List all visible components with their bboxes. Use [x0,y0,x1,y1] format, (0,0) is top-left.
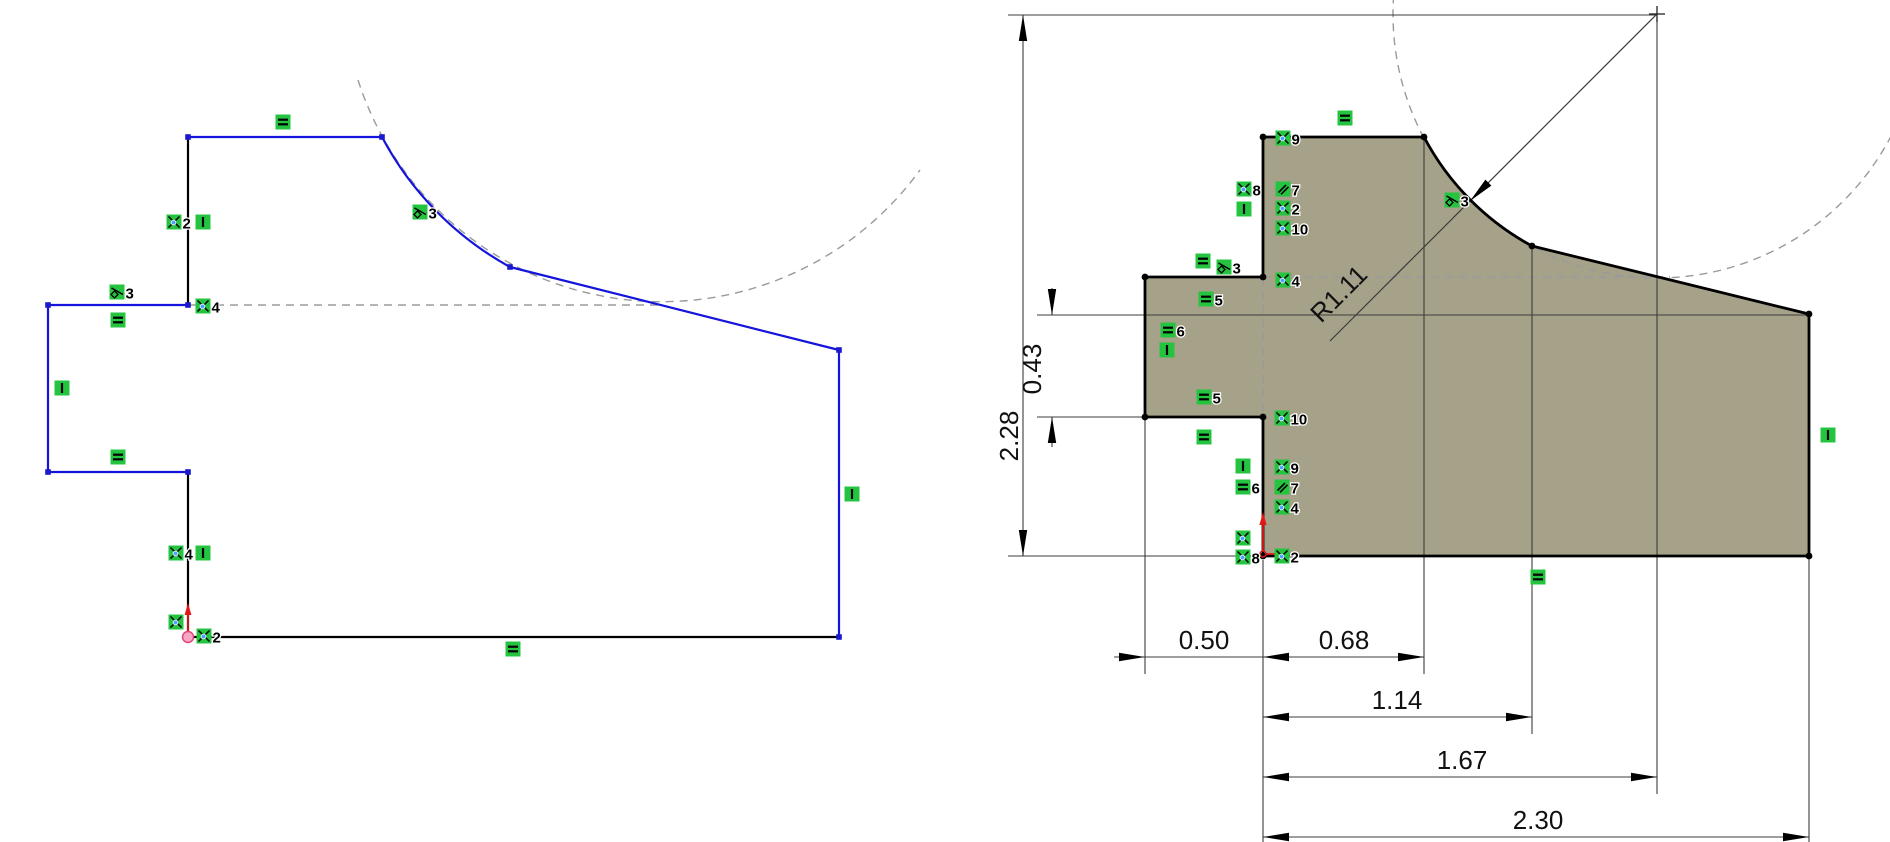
relation-icon-coincident[interactable]: 2 [1275,549,1299,567]
relation-icon-tangent[interactable]: 3 [110,285,134,303]
relation-icon-vertical[interactable] [1236,459,1251,474]
relation-number: 2 [1291,550,1299,567]
sketch-arc-edge[interactable] [382,137,510,267]
relation-icon-vertical[interactable] [55,381,70,396]
sketch-vertex[interactable] [1142,414,1149,421]
sketch-vertex[interactable] [1142,274,1149,281]
relation-number: 4 [1292,274,1301,291]
dimension-label[interactable]: 0.68 [1319,625,1370,655]
origin-marker[interactable] [183,603,194,643]
dimension-2.28[interactable]: 2.28 [994,15,1027,556]
relation-number: 6 [1177,324,1185,341]
relation-number: 6 [1252,481,1260,498]
relation-icon-equal[interactable] [1197,430,1212,445]
sketch-vertex[interactable] [45,469,51,475]
relation-number: 10 [1291,412,1308,429]
dimension-1.67[interactable]: 1.67 [1263,745,1657,781]
sketch-vertex[interactable] [1260,414,1267,421]
relation-icon-coincident[interactable]: 2 [197,629,221,647]
relation-number: 2 [183,216,191,233]
sketch-edge[interactable] [510,267,839,350]
relation-icon-coincident[interactable] [169,615,184,630]
relation-icon-vertical[interactable] [196,215,211,230]
relation-number: 4 [212,300,221,317]
relation-icon-equal[interactable] [1338,111,1353,126]
dimension-label[interactable]: 1.14 [1372,685,1423,715]
relation-icon-equal[interactable] [276,115,291,130]
relation-number: 8 [1253,183,1261,200]
dimension-2.30[interactable]: 2.30 [1263,805,1809,841]
sketch-vertex[interactable] [1806,553,1813,560]
dimension-label[interactable]: 0.43 [1017,344,1047,395]
relation-icon-vertical[interactable] [845,487,860,502]
sketch-vertex[interactable] [1260,134,1267,141]
sketch-vertex[interactable] [1806,311,1813,318]
sketch-vertex[interactable] [185,134,191,140]
relation-icon-equal[interactable] [111,313,126,328]
relation-icon-tangent[interactable]: 3 [1217,260,1241,278]
relation-number: 7 [1292,183,1300,200]
sketch-vertex[interactable] [1260,274,1267,281]
relation-number: 9 [1292,132,1300,149]
relation-number: 10 [1292,222,1309,239]
sketch-vertex[interactable] [1529,243,1536,250]
relation-number: 5 [1213,391,1221,408]
relation-icon-equal[interactable] [1531,570,1546,585]
relation-icon-vertical[interactable] [1237,202,1252,217]
right-sketch: 2.280.430.500.681.141.672.30R1.119872103… [994,0,1890,842]
relation-icon-coincident[interactable]: 4 [169,546,194,564]
dimension-0.50[interactable]: 0.50 [1114,625,1263,661]
relation-number: 2 [1292,202,1300,219]
dimension-0.68[interactable]: 0.68 [1263,625,1424,661]
relation-number: 3 [429,206,437,223]
relation-number: 4 [1291,501,1300,518]
relation-number: 8 [1252,551,1260,568]
relation-number: 4 [185,547,194,564]
dimension-label[interactable]: 1.67 [1437,745,1488,775]
sketch-vertex[interactable] [379,134,385,140]
relation-icon-equal[interactable] [111,450,126,465]
sketch-vertex[interactable] [45,302,51,308]
relation-icon-equal[interactable]: 6 [1236,480,1260,498]
relation-number: 3 [1233,261,1241,278]
relation-number: 3 [126,286,134,303]
dimension-label[interactable]: 2.30 [1513,805,1564,835]
sketch-vertex[interactable] [185,469,191,475]
sketch-viewport[interactable]: 2334422.280.430.500.681.141.672.30R1.119… [0,0,1890,842]
construction-circle[interactable] [358,80,920,302]
relation-number: 3 [1461,194,1469,211]
relation-icon-vertical[interactable] [1821,428,1836,443]
relation-icon-tangent[interactable]: 3 [413,205,437,223]
sketch-vertex[interactable] [1421,134,1428,141]
relation-icon-vertical[interactable] [196,546,211,561]
relation-number: 9 [1291,461,1299,478]
dimension-1.14[interactable]: 1.14 [1263,685,1532,721]
dimension-label[interactable]: 2.28 [994,411,1024,462]
sketch-canvas[interactable]: 2334422.280.430.500.681.141.672.30R1.119… [0,0,1890,842]
sketch-vertex[interactable] [507,264,513,270]
relation-icon-equal[interactable] [506,642,521,657]
sketch-vertex[interactable] [185,302,191,308]
relation-icon-vertical[interactable] [1160,343,1175,358]
relation-icon-coincident[interactable]: 8 [1236,550,1260,568]
relation-icon-coincident[interactable] [1236,531,1251,546]
relation-icon-coincident[interactable]: 8 [1237,182,1261,200]
relation-icon-equal[interactable] [1196,254,1211,269]
relation-number: 7 [1291,481,1299,498]
relation-number: 5 [1215,293,1223,310]
sketch-vertex[interactable] [836,347,842,353]
relation-icon-coincident[interactable]: 4 [196,299,221,317]
relation-icon-coincident[interactable]: 2 [167,215,191,233]
sketch-vertex[interactable] [836,634,842,640]
left-sketch: 233442 [45,80,920,657]
dimension-label[interactable]: 0.50 [1179,625,1230,655]
relation-number: 2 [213,630,221,647]
